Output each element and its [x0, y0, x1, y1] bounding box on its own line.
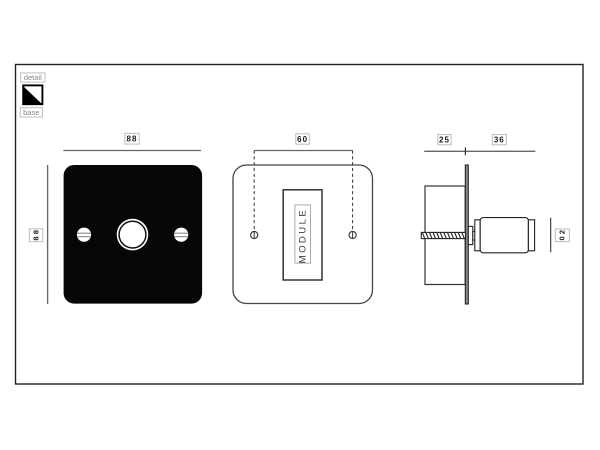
svg-text:8: 8 — [31, 236, 40, 240]
svg-text:36: 36 — [494, 136, 505, 145]
svg-text:detail: detail — [24, 73, 42, 82]
svg-text:25: 25 — [439, 136, 450, 145]
svg-text:88: 88 — [127, 135, 138, 144]
svg-text:MODULE: MODULE — [297, 208, 308, 263]
svg-text:0: 0 — [558, 236, 567, 240]
svg-text:base: base — [23, 108, 39, 117]
svg-text:60: 60 — [297, 135, 308, 144]
svg-text:2: 2 — [558, 230, 567, 234]
svg-text:8: 8 — [31, 230, 40, 234]
